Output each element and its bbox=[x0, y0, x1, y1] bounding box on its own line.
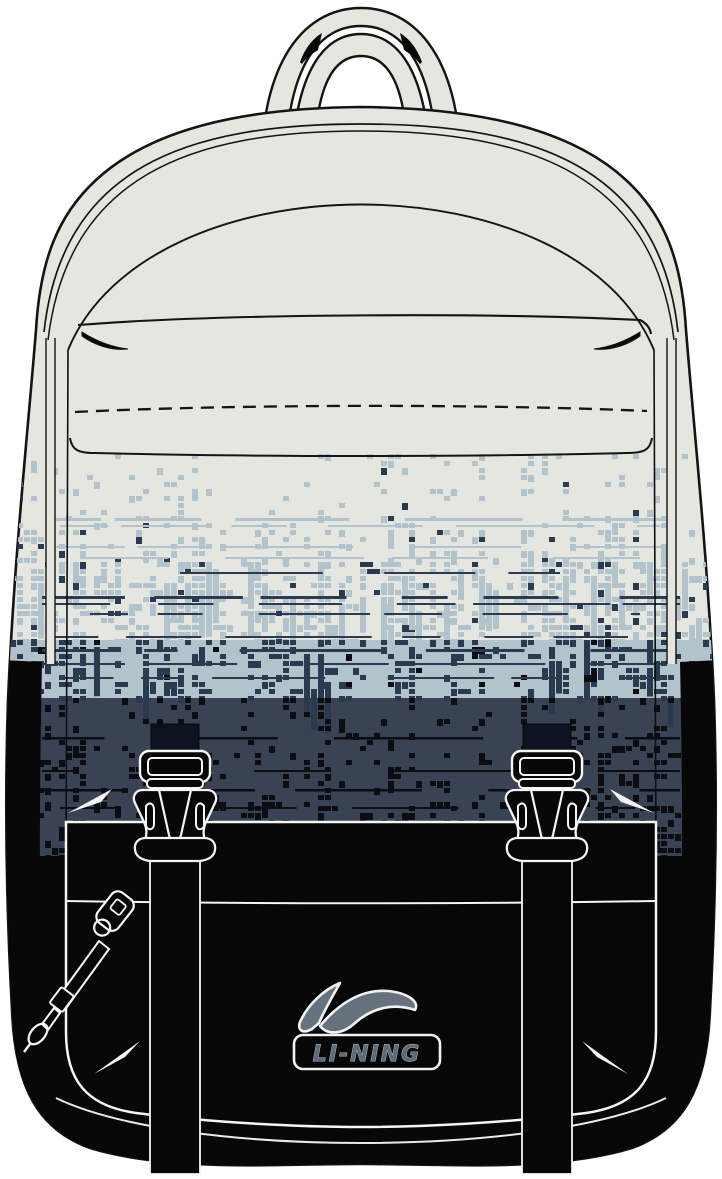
logo-text: LI-NING bbox=[313, 1042, 421, 1067]
backpack-illustration: LI-NING bbox=[0, 0, 722, 1179]
strap-right bbox=[522, 856, 572, 1174]
side-piping-right bbox=[667, 338, 676, 664]
buckle-adjuster-slot bbox=[148, 758, 202, 775]
strap-left bbox=[150, 856, 200, 1174]
buckle-bell bbox=[135, 838, 215, 861]
side-piping-left bbox=[46, 338, 55, 664]
product-image-canvas: LI-NING bbox=[0, 0, 722, 1179]
buckle-lower-bar bbox=[147, 779, 203, 788]
